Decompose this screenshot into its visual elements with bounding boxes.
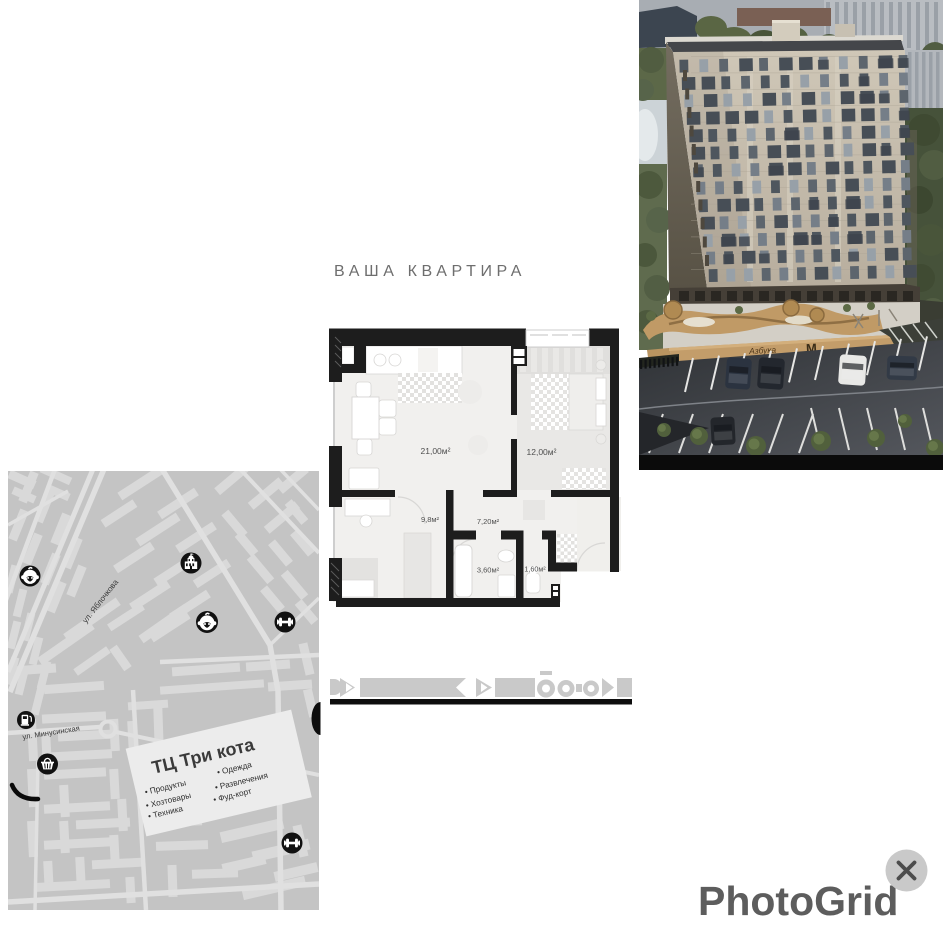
svg-text:7,20м²: 7,20м² <box>477 517 500 526</box>
svg-text:21,00м²: 21,00м² <box>421 446 451 456</box>
svg-text:12,00м²: 12,00м² <box>527 447 557 457</box>
svg-text:9,8м²: 9,8м² <box>421 515 440 524</box>
svg-text:3,60м²: 3,60м² <box>477 566 500 575</box>
svg-text:1,60м²: 1,60м² <box>524 565 546 574</box>
